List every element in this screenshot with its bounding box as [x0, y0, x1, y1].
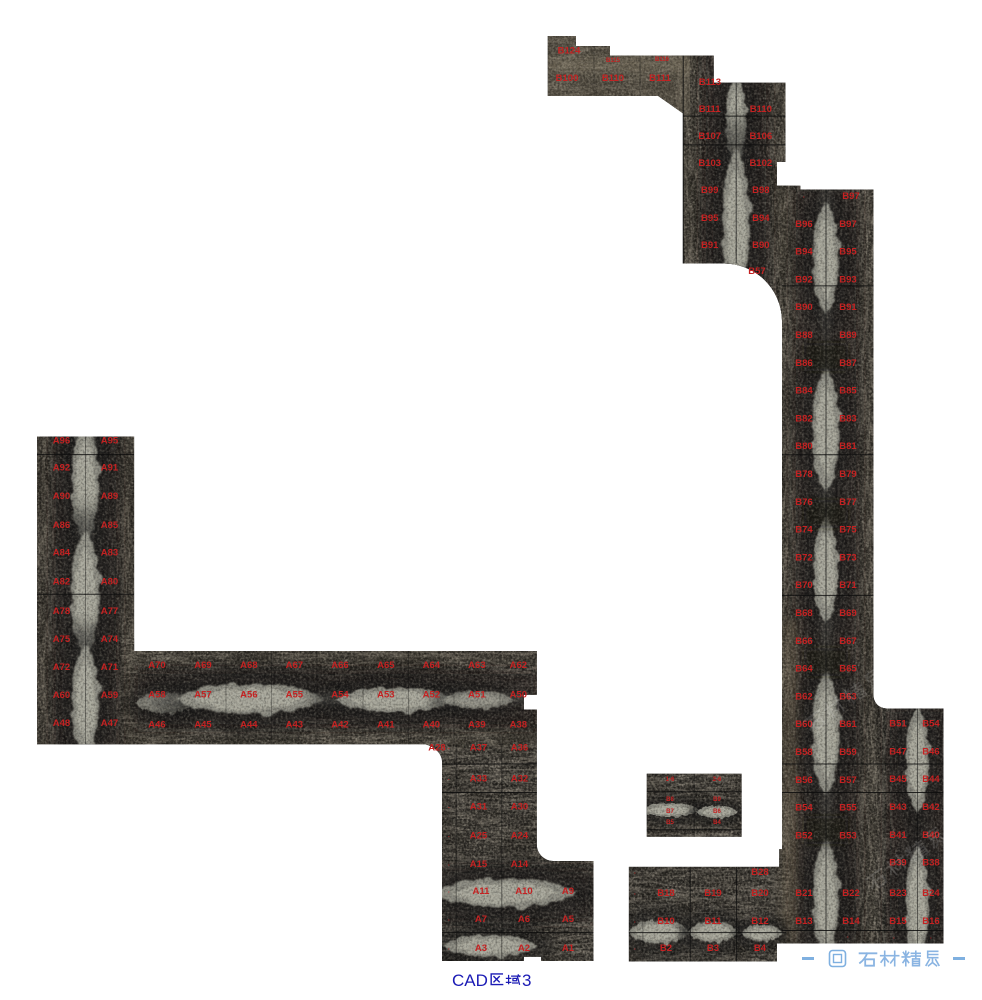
svg-text:B46: B46 — [922, 746, 939, 757]
svg-text:A71: A71 — [101, 662, 119, 673]
svg-text:A89: A89 — [101, 491, 118, 502]
svg-text:A58: A58 — [148, 690, 165, 701]
svg-text:·: · — [803, 195, 805, 201]
svg-text:3: 3 — [522, 971, 531, 990]
svg-text:B111: B111 — [699, 104, 721, 115]
svg-text:A83: A83 — [101, 548, 118, 559]
svg-text:B64: B64 — [795, 664, 813, 675]
svg-text:B56: B56 — [795, 775, 812, 786]
svg-text:A63: A63 — [468, 660, 485, 671]
svg-text:B106: B106 — [749, 131, 772, 142]
svg-text:B96: B96 — [795, 219, 812, 230]
svg-text:·: · — [448, 890, 450, 896]
svg-text:·: · — [448, 805, 450, 811]
svg-text:B62: B62 — [795, 691, 812, 702]
svg-text:B111: B111 — [649, 73, 671, 84]
svg-text:A33: A33 — [470, 774, 487, 785]
svg-text:B20: B20 — [751, 888, 768, 899]
svg-text:B116: B116 — [655, 57, 670, 63]
svg-text:A53: A53 — [377, 690, 394, 701]
svg-text:A68: A68 — [240, 660, 257, 671]
svg-text:A85: A85 — [101, 520, 119, 531]
svg-text:B76: B76 — [795, 497, 812, 508]
svg-text:A72: A72 — [53, 662, 70, 673]
svg-text:B91: B91 — [839, 302, 857, 313]
svg-text:A39: A39 — [468, 719, 485, 730]
svg-text:B6: B6 — [713, 809, 721, 815]
svg-text:A50: A50 — [510, 690, 527, 701]
svg-text:A59: A59 — [101, 690, 118, 701]
svg-text:A55: A55 — [286, 690, 304, 701]
svg-text:B9: B9 — [713, 797, 721, 803]
svg-text:B89: B89 — [839, 330, 856, 341]
svg-text:B72: B72 — [795, 552, 812, 563]
svg-text:A7: A7 — [475, 914, 487, 925]
svg-text:A30: A30 — [511, 801, 528, 812]
svg-text:·: · — [893, 936, 895, 942]
svg-text:B90: B90 — [795, 302, 812, 313]
svg-text:A82: A82 — [53, 576, 70, 587]
svg-text:A24: A24 — [511, 831, 529, 842]
svg-text:A65: A65 — [377, 660, 395, 671]
svg-text:A95: A95 — [101, 436, 119, 447]
svg-text:A60: A60 — [53, 690, 70, 701]
svg-text:B47: B47 — [889, 746, 906, 757]
svg-text:B58: B58 — [795, 747, 812, 758]
svg-text:B42: B42 — [922, 802, 939, 813]
svg-text:B15: B15 — [889, 916, 907, 927]
svg-text:A3: A3 — [475, 943, 487, 954]
svg-text:A15: A15 — [470, 859, 488, 870]
svg-text:B54: B54 — [922, 719, 940, 730]
svg-text:A74: A74 — [101, 634, 119, 645]
svg-text:B73: B73 — [839, 552, 856, 563]
svg-text:·: · — [448, 778, 450, 784]
svg-text:A42: A42 — [331, 719, 348, 730]
svg-text:A90: A90 — [53, 491, 70, 502]
svg-text:A67: A67 — [286, 660, 303, 671]
svg-text:B85: B85 — [839, 386, 857, 397]
svg-text:B10: B10 — [657, 916, 674, 927]
svg-text:B115: B115 — [606, 58, 621, 64]
svg-text:B86: B86 — [795, 358, 812, 369]
svg-text:·: · — [448, 747, 450, 753]
svg-text:B94: B94 — [752, 213, 770, 224]
svg-text:B94: B94 — [795, 247, 813, 258]
svg-text:B124: B124 — [558, 46, 581, 57]
svg-text:B44: B44 — [922, 774, 940, 785]
svg-text:B110: B110 — [750, 104, 772, 115]
svg-text:B19: B19 — [704, 888, 721, 899]
svg-text:B95: B95 — [839, 247, 857, 258]
svg-text:B78: B78 — [795, 469, 812, 480]
svg-text:B88: B88 — [795, 330, 812, 341]
svg-text:B97: B97 — [839, 219, 856, 230]
svg-text:B83: B83 — [839, 413, 856, 424]
svg-text:B57: B57 — [839, 775, 856, 786]
svg-text:B68: B68 — [795, 608, 812, 619]
svg-text:A52: A52 — [423, 690, 440, 701]
svg-text:A5: A5 — [562, 914, 575, 925]
svg-text:B12: B12 — [751, 916, 768, 927]
svg-text:B13: B13 — [795, 916, 812, 927]
svg-text:CAD: CAD — [452, 971, 488, 990]
svg-text:·: · — [448, 835, 450, 841]
svg-text:B77: B77 — [839, 497, 856, 508]
svg-text:A40: A40 — [423, 719, 440, 730]
svg-text:B100: B100 — [556, 73, 579, 84]
svg-text:A80: A80 — [101, 576, 118, 587]
svg-text:B113: B113 — [699, 77, 721, 88]
svg-text:B7: B7 — [666, 809, 674, 815]
svg-text:B84: B84 — [795, 386, 813, 397]
svg-text:A66: A66 — [331, 660, 348, 671]
svg-text:B4: B4 — [754, 943, 767, 954]
svg-text:B65: B65 — [839, 664, 857, 675]
svg-text:1-6: 1-6 — [666, 777, 675, 783]
svg-text:A91: A91 — [101, 463, 119, 474]
svg-text:·: · — [448, 863, 450, 869]
svg-text:B70: B70 — [795, 580, 812, 591]
svg-text:B8: B8 — [666, 797, 674, 803]
svg-text:B81: B81 — [839, 441, 857, 452]
svg-text:A48: A48 — [53, 718, 70, 729]
svg-text:B80: B80 — [795, 441, 812, 452]
svg-text:A43: A43 — [286, 719, 303, 730]
svg-text:A64: A64 — [423, 660, 441, 671]
svg-text:B93: B93 — [839, 274, 856, 285]
svg-text:B22: B22 — [842, 888, 859, 899]
svg-text:B59: B59 — [839, 747, 856, 758]
svg-text:A28: A28 — [428, 743, 445, 754]
svg-text:B2: B2 — [660, 943, 672, 954]
svg-text:·: · — [448, 918, 450, 924]
svg-text:A96: A96 — [53, 436, 70, 447]
svg-text:B38: B38 — [922, 858, 939, 869]
svg-text:B69: B69 — [839, 608, 856, 619]
svg-text:B102: B102 — [749, 158, 772, 169]
svg-text:B82: B82 — [795, 413, 812, 424]
svg-text:B24: B24 — [922, 888, 940, 899]
svg-text:B90: B90 — [752, 240, 769, 251]
svg-text:B107: B107 — [698, 131, 721, 142]
svg-text:B61: B61 — [839, 719, 857, 730]
svg-text:B79: B79 — [839, 469, 856, 480]
svg-text:B92: B92 — [795, 274, 812, 285]
svg-text:A86: A86 — [53, 520, 70, 531]
svg-text:·: · — [634, 920, 636, 926]
svg-text:B110: B110 — [602, 73, 624, 84]
svg-text:A56: A56 — [240, 690, 257, 701]
svg-text:B97: B97 — [842, 191, 859, 202]
svg-text:A11: A11 — [473, 886, 491, 897]
svg-text:A51: A51 — [468, 690, 486, 701]
svg-text:B66: B66 — [795, 636, 812, 647]
svg-text:A10: A10 — [515, 886, 532, 897]
svg-text:·: · — [847, 935, 849, 941]
svg-text:B95: B95 — [701, 213, 719, 224]
svg-text:B74: B74 — [795, 525, 813, 536]
svg-text:A25: A25 — [470, 831, 488, 842]
svg-text:A84: A84 — [53, 548, 71, 559]
svg-text:B52: B52 — [795, 830, 812, 841]
svg-text:A37: A37 — [470, 743, 487, 754]
svg-text:·: · — [634, 871, 636, 877]
svg-text:B18: B18 — [657, 888, 674, 899]
svg-text:B41: B41 — [889, 830, 907, 841]
svg-text:B28: B28 — [751, 867, 768, 878]
svg-text:A69: A69 — [194, 660, 211, 671]
svg-text:B103: B103 — [698, 158, 721, 169]
svg-text:B71: B71 — [839, 580, 857, 591]
svg-text:B75: B75 — [839, 525, 857, 536]
svg-text:A6: A6 — [518, 914, 530, 925]
svg-text:2-6: 2-6 — [713, 777, 722, 783]
svg-text:A1: A1 — [562, 943, 575, 954]
svg-text:A57: A57 — [194, 690, 211, 701]
svg-text:A32: A32 — [511, 774, 528, 785]
svg-text:·: · — [634, 892, 636, 898]
svg-text:A45: A45 — [194, 719, 212, 730]
svg-text:B23: B23 — [889, 888, 906, 899]
svg-text:B11: B11 — [705, 916, 723, 927]
svg-text:A44: A44 — [240, 719, 258, 730]
svg-text:A75: A75 — [53, 634, 71, 645]
svg-text:B67: B67 — [839, 636, 856, 647]
svg-text:A36: A36 — [511, 743, 528, 754]
svg-text:B53: B53 — [839, 830, 856, 841]
svg-text:A77: A77 — [101, 606, 118, 617]
svg-text:B55: B55 — [839, 803, 857, 814]
svg-text:B14: B14 — [842, 916, 860, 927]
svg-text:B5: B5 — [666, 820, 674, 826]
svg-text:·: · — [448, 947, 450, 953]
svg-text:A62: A62 — [510, 660, 527, 671]
svg-text:B45: B45 — [889, 774, 907, 785]
svg-text:B16: B16 — [922, 916, 939, 927]
svg-text:B54: B54 — [795, 803, 813, 814]
svg-text:B3: B3 — [707, 943, 719, 954]
svg-text:A70: A70 — [148, 660, 165, 671]
svg-text:B99: B99 — [701, 185, 718, 196]
svg-text:·: · — [634, 947, 636, 953]
svg-text:B4: B4 — [713, 820, 721, 826]
svg-text:A38: A38 — [510, 719, 527, 730]
svg-text:A31: A31 — [470, 801, 488, 812]
svg-text:B57: B57 — [748, 266, 765, 277]
svg-text:B43: B43 — [889, 802, 906, 813]
svg-text:B87: B87 — [839, 358, 856, 369]
svg-text:B21: B21 — [795, 888, 813, 899]
svg-text:A78: A78 — [53, 606, 70, 617]
svg-text:B51: B51 — [889, 719, 907, 730]
svg-text:A9: A9 — [562, 886, 574, 897]
svg-text:A54: A54 — [331, 690, 349, 701]
svg-text:A14: A14 — [511, 859, 529, 870]
svg-text:·: · — [930, 936, 932, 942]
svg-text:A92: A92 — [53, 463, 70, 474]
svg-text:A2: A2 — [518, 943, 530, 954]
svg-text:A47: A47 — [101, 718, 118, 729]
svg-text:A41: A41 — [377, 719, 395, 730]
svg-text:A46: A46 — [148, 719, 165, 730]
svg-text:B98: B98 — [752, 185, 769, 196]
svg-text:B91: B91 — [701, 240, 719, 251]
